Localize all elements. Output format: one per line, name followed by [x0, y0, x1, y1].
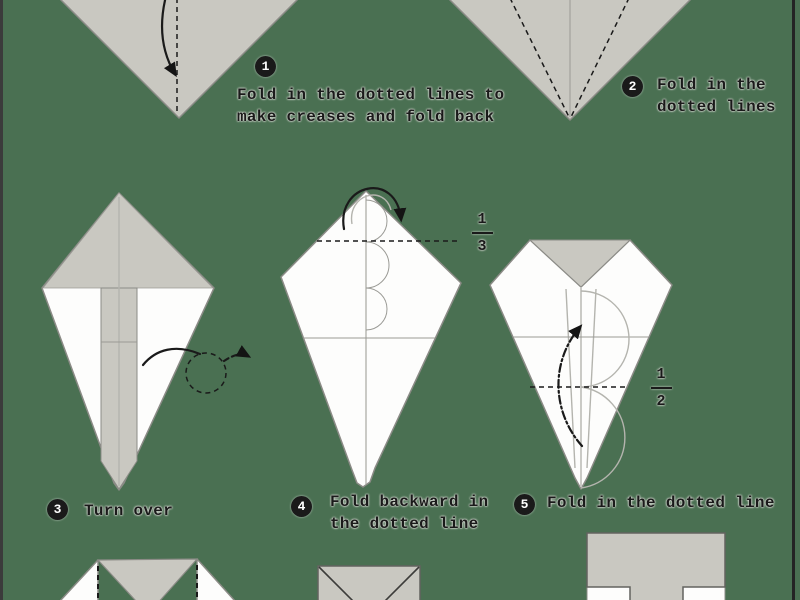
- step-2-text-line-2: dotted lines: [657, 96, 776, 118]
- gray-rectangle: [318, 566, 420, 600]
- sheet-right-border: [792, 0, 795, 600]
- fraction-numerator: 1: [467, 208, 497, 231]
- top-gray-triangle: [43, 193, 213, 288]
- step-5-number-badge: 5: [514, 494, 535, 515]
- fraction-one-half: 1 2: [646, 363, 676, 413]
- left-wing: [60, 560, 98, 600]
- fraction-denominator: 3: [467, 235, 497, 258]
- origami-instructions-sheet: 1 2 3 4 5 Fold in the dotted lines to ma…: [0, 0, 800, 600]
- fraction-numerator: 1: [646, 363, 676, 386]
- step-5-instruction: Fold in the dotted line: [547, 492, 775, 514]
- kite-body: [281, 191, 461, 487]
- right-white-notch: [683, 587, 725, 600]
- step-4-text-line-1: Fold backward in: [330, 491, 488, 513]
- fraction-denominator: 2: [646, 390, 676, 413]
- diagram-step8-shape-partial: [587, 533, 725, 600]
- step-2-instruction: Fold in the dotted lines: [657, 74, 776, 118]
- diagram-step5-shape: [490, 240, 672, 489]
- step-3-text-line-1: Turn over: [84, 500, 173, 522]
- step-1-text-line-2: make creases and fold back: [237, 106, 504, 128]
- gray-notch-triangle: [98, 559, 197, 600]
- step-5-text-line-1: Fold in the dotted line: [547, 492, 775, 514]
- turn-over-arrow-head-icon: [224, 354, 248, 361]
- step-1-instruction: Fold in the dotted lines to make creases…: [237, 84, 504, 128]
- step-1-text-line-1: Fold in the dotted lines to: [237, 84, 504, 106]
- step-2-text-line-1: Fold in the: [657, 74, 776, 96]
- step-2-number-badge: 2: [622, 76, 643, 97]
- right-wing: [197, 559, 235, 600]
- step-3-number-badge: 3: [47, 499, 68, 520]
- diagram-step7-shape-partial: [318, 566, 420, 600]
- step-4-instruction: Fold backward in the dotted line: [330, 491, 488, 535]
- fraction-bar: [472, 232, 493, 234]
- step-3-instruction: Turn over: [84, 500, 173, 522]
- step-4-number-badge: 4: [291, 496, 312, 517]
- diagram-step6-shape-partial: [60, 559, 235, 600]
- diagram-step3-kite: [42, 193, 248, 490]
- step-1-number-badge: 1: [255, 56, 276, 77]
- fraction-bar: [651, 387, 672, 389]
- fraction-one-third: 1 3: [467, 208, 497, 258]
- turn-over-arrow-loop-icon: [186, 353, 226, 393]
- sheet-left-border: [0, 0, 3, 600]
- diagram-step4-kite: [281, 188, 461, 487]
- left-white-notch: [587, 587, 630, 600]
- step-4-text-line-2: the dotted line: [330, 513, 488, 535]
